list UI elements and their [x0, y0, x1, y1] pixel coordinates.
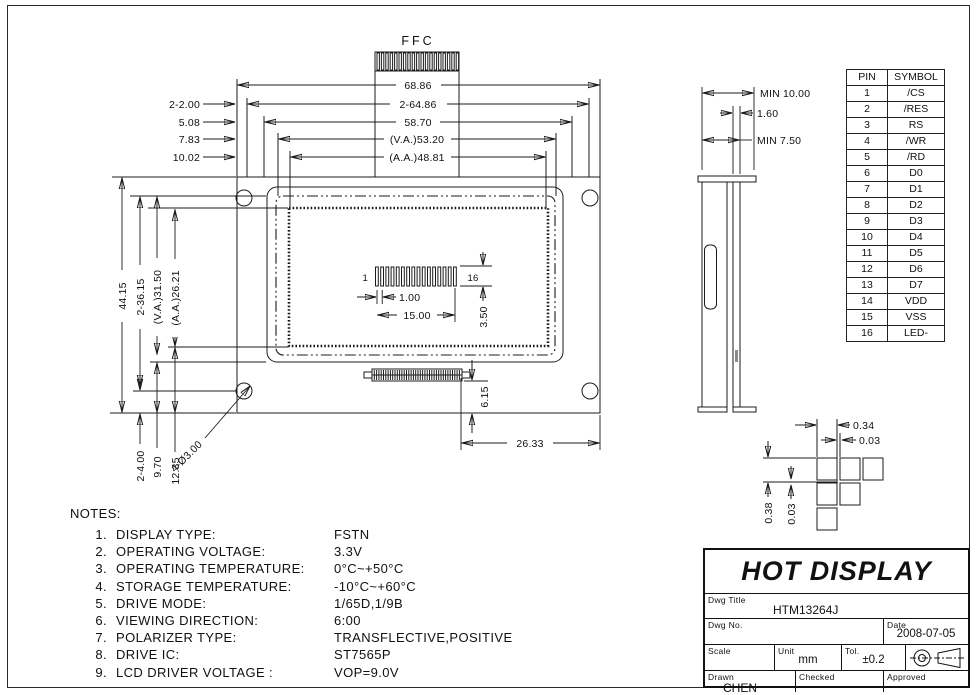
tail-connector — [364, 369, 470, 381]
table-row: 13D7 — [847, 278, 945, 294]
mounting-hole — [236, 190, 252, 206]
table-row: 15VSS — [847, 310, 945, 326]
company-name: HOT DISPLAY — [705, 550, 968, 594]
title-block: HOT DISPLAY Dwg Title HTM13264J Dwg No. … — [703, 548, 970, 688]
pin-no: 7 — [847, 182, 888, 198]
dwg-no-label: Dwg No. — [705, 619, 883, 630]
pin-first-label: 1 — [363, 273, 368, 284]
dim-pin-span: 15.00 — [403, 310, 430, 322]
mounting-hole — [582, 190, 598, 206]
notes-section: NOTES: 1.DISPLAY TYPE:FSTN 2.OPERATING V… — [70, 506, 570, 681]
table-row: 6D0 — [847, 166, 945, 182]
pin-symbol: D3 — [888, 214, 945, 230]
unit-value: mm — [775, 654, 841, 666]
dim-aa-width: (A.A.)48.81 — [389, 152, 444, 164]
dim-overall-height: 44.15 — [117, 282, 129, 309]
table-row: 3RS — [847, 118, 945, 134]
pin-no: 5 — [847, 150, 888, 166]
table-row: 1/CS — [847, 86, 945, 102]
ffc-label: FFC — [401, 34, 434, 48]
table-row: 12D6 — [847, 262, 945, 278]
pin-no: 14 — [847, 294, 888, 310]
tail-dimensions: 6.15 26.33 — [461, 360, 600, 450]
pin-no: 13 — [847, 278, 888, 294]
pin-no: 4 — [847, 134, 888, 150]
pin-no: 3 — [847, 118, 888, 134]
list-item: 4.STORAGE TEMPERATURE:-10°C~+60°C — [70, 578, 570, 595]
pin-symbol: D2 — [888, 198, 945, 214]
list-item: 8.DRIVE IC:ST7565P — [70, 646, 570, 663]
pin-symbol: RS — [888, 118, 945, 134]
pin-no: 10 — [847, 230, 888, 246]
dim-min-10: MIN 10.00 — [760, 88, 810, 100]
dim-pin-pitch: 1.00 — [399, 292, 420, 304]
mounting-hole — [236, 383, 252, 399]
dwg-title-value: HTM13264J — [705, 603, 968, 617]
symbol-col-header: SYMBOL — [888, 70, 945, 86]
drawn-value: CHEN — [705, 681, 795, 695]
pin-symbol: D7 — [888, 278, 945, 294]
table-row: 2/RES — [847, 102, 945, 118]
dim-9-70: 9.70 — [152, 456, 164, 477]
pin-symbol: /CS — [888, 86, 945, 102]
hole-callout: 4-Ø3.00 — [169, 439, 205, 475]
signature-row: Drawn CHEN Checked Approved — [705, 671, 968, 692]
dot-detail: 0.34 0.03 0.38 0.03 — [763, 419, 883, 530]
pin-col-header: PIN — [847, 70, 888, 86]
dim-pin-height: 3.50 — [478, 306, 490, 327]
dim-hole-span: 2-64.86 — [399, 99, 436, 111]
dim-va-height: (V.A.)31.50 — [152, 270, 164, 324]
bottom-left-dimensions: 2-4.00 9.70 12.35 4-Ø3.00 — [135, 347, 250, 485]
pin-symbol: D6 — [888, 262, 945, 278]
dwg-no-row: Dwg No. Date 2008-07-05 — [705, 619, 968, 645]
scale-label: Scale — [705, 645, 774, 656]
dim-offset-10-02: 10.02 — [173, 152, 200, 164]
pin-symbol: VSS — [888, 310, 945, 326]
pin-no: 1 — [847, 86, 888, 102]
pin-no: 12 — [847, 262, 888, 278]
pin-symbol: /RD — [888, 150, 945, 166]
side-view: MIN 10.00 1.60 MIN 7.50 — [698, 87, 810, 412]
table-row: 14VDD — [847, 294, 945, 310]
dim-36-15: 2-36.15 — [135, 278, 147, 315]
pin-symbol: D1 — [888, 182, 945, 198]
side-dimensions: MIN 10.00 1.60 MIN 7.50 — [702, 87, 810, 174]
tol-value: ±0.2 — [842, 654, 905, 666]
pin-symbol: VDD — [888, 294, 945, 310]
front-view: FFC 68.86 2-2.00 — [110, 34, 600, 485]
list-item: 2.OPERATING VOLTAGE:3.3V — [70, 543, 570, 560]
dim-dot-pitch-y: 0.38 — [763, 502, 775, 523]
list-item: 6.VIEWING DIRECTION:6:00 — [70, 612, 570, 629]
table-row: 16LED- — [847, 326, 945, 342]
dim-tail-offset: 6.15 — [479, 386, 491, 407]
lcd-pin-marks: 1 16 1.00 15.00 — [357, 252, 492, 333]
pin-no: 6 — [847, 166, 888, 182]
pin-symbol: D4 — [888, 230, 945, 246]
pin-last-label: 16 — [468, 273, 479, 284]
checked-label: Checked — [796, 671, 883, 682]
pin-symbol: /WR — [888, 134, 945, 150]
pin-table: PIN SYMBOL 1/CS 2/RES 3RS 4/WR 5/RD 6D0 … — [846, 69, 945, 342]
table-row: 7D1 — [847, 182, 945, 198]
dim-corner-offset: 2-2.00 — [169, 99, 200, 111]
table-row: 9D3 — [847, 214, 945, 230]
dim-1-60: 1.60 — [757, 108, 778, 120]
table-row: 10D4 — [847, 230, 945, 246]
mounting-hole — [582, 383, 598, 399]
date-value: 2008-07-05 — [884, 628, 968, 640]
notes-title: NOTES: — [70, 506, 570, 521]
top-dimensions: 68.86 2-2.00 2-64.86 5.08 58.70 — [169, 79, 600, 164]
pin-symbol: D0 — [888, 166, 945, 182]
dim-min-7-50: MIN 7.50 — [757, 135, 801, 147]
pin-no: 16 — [847, 326, 888, 342]
dim-tail-right: 26.33 — [516, 438, 543, 450]
list-item: 7.POLARIZER TYPE:TRANSFLECTIVE,POSITIVE — [70, 629, 570, 646]
list-item: 5.DRIVE MODE:1/65D,1/9B — [70, 595, 570, 612]
active-area-outline — [289, 208, 548, 346]
pin-no: 11 — [847, 246, 888, 262]
dim-58-70: 58.70 — [404, 117, 431, 129]
pin-symbol: LED- — [888, 326, 945, 342]
dim-hole-edge: 2-4.00 — [135, 451, 147, 482]
dim-va-width: (V.A.)53.20 — [390, 134, 444, 146]
dim-dot-gap-x: 0.03 — [859, 435, 880, 447]
table-row: 11D5 — [847, 246, 945, 262]
drawing-sheet: FFC 68.86 2-2.00 — [0, 0, 978, 695]
dim-aa-height: (A.A.)26.21 — [170, 270, 182, 325]
pin-no: 15 — [847, 310, 888, 326]
table-row: 5/RD — [847, 150, 945, 166]
list-item: 9.LCD DRIVER VOLTAGE :VOP=9.0V — [70, 664, 570, 681]
pin-no: 9 — [847, 214, 888, 230]
list-item: 3.OPERATING TEMPERATURE:0°C~+50°C — [70, 560, 570, 577]
dim-offset-5-08: 5.08 — [179, 117, 200, 129]
dwg-title-row: Dwg Title HTM13264J — [705, 594, 968, 619]
dim-overall-width: 68.86 — [404, 80, 431, 92]
dim-offset-7-83: 7.83 — [179, 134, 200, 146]
dim-dot-gap-y: 0.03 — [786, 503, 798, 524]
projection-symbol-icon — [908, 647, 966, 669]
pin-table-header: PIN SYMBOL — [847, 70, 945, 86]
table-row: 8D2 — [847, 198, 945, 214]
viewing-area-outline — [276, 196, 555, 355]
pin-symbol: D5 — [888, 246, 945, 262]
scale-row: Scale Unit mm Tol. ±0.2 — [705, 645, 968, 671]
dim-dot-pitch-x: 0.34 — [853, 420, 874, 432]
table-row: 4/WR — [847, 134, 945, 150]
pin-symbol: /RES — [888, 102, 945, 118]
list-item: 1.DISPLAY TYPE:FSTN — [70, 526, 570, 543]
approved-label: Approved — [884, 671, 968, 682]
pin-no: 2 — [847, 102, 888, 118]
left-dimensions: 44.15 2-36.15 (V.A.)31.50 (A.A.)26.21 — [116, 177, 182, 413]
pin-no: 8 — [847, 198, 888, 214]
